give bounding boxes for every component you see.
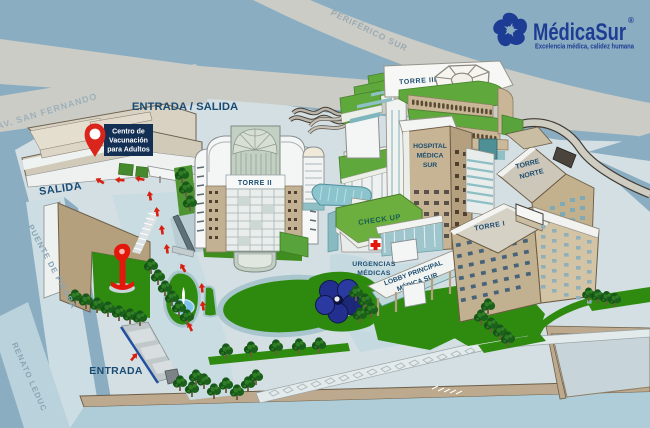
svg-text:MÉDICA: MÉDICA bbox=[417, 151, 444, 160]
svg-text:MÉDICAS: MÉDICAS bbox=[357, 268, 391, 277]
svg-text:®: ® bbox=[628, 16, 634, 25]
svg-text:ENTRADA: ENTRADA bbox=[89, 365, 143, 377]
svg-text:TORRE II: TORRE II bbox=[238, 180, 272, 187]
svg-text:Vacunación: Vacunación bbox=[109, 138, 148, 145]
svg-text:SUR: SUR bbox=[423, 162, 437, 169]
svg-text:HOSPITAL: HOSPITAL bbox=[413, 143, 447, 150]
svg-text:Centro de: Centro de bbox=[112, 129, 145, 136]
svg-text:Excelencia médica, calidez hum: Excelencia médica, calidez humana bbox=[535, 42, 635, 51]
svg-text:URGENCIAS: URGENCIAS bbox=[352, 261, 396, 268]
svg-text:ENTRADA / SALIDA: ENTRADA / SALIDA bbox=[132, 101, 238, 113]
svg-text:para Adultos: para Adultos bbox=[107, 147, 150, 154]
